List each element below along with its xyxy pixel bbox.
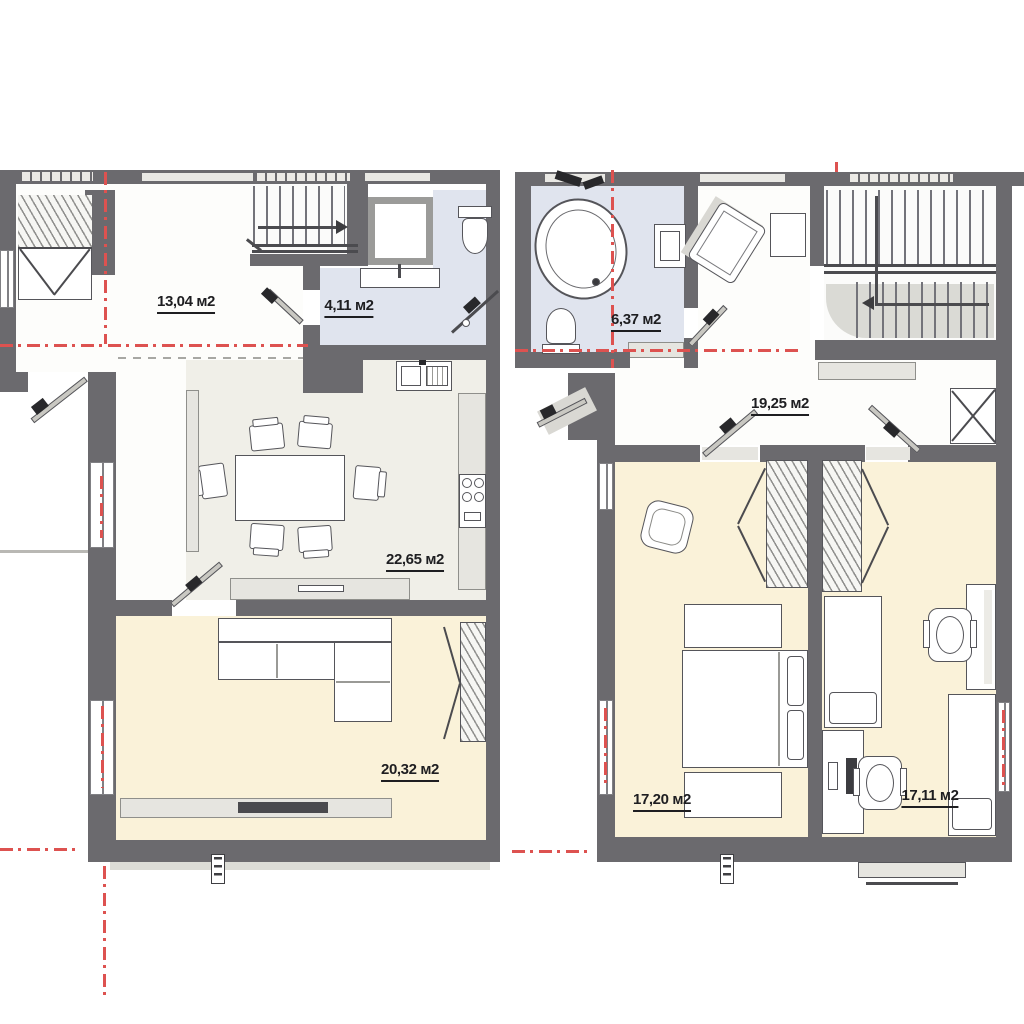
office-chair: [858, 756, 902, 810]
hall-cabinet: [818, 362, 916, 380]
office-chair: [928, 608, 972, 662]
staircase-walkline: [875, 196, 878, 304]
balcony-railing-line: [866, 882, 958, 885]
stairs-direction-arrow: [862, 296, 874, 310]
floor-plan-second: 6,37 м2 19,25 м2 17,20 м2 17,11 м2: [0, 0, 1024, 1024]
axis-line: [515, 349, 800, 352]
balcony-railing: [858, 862, 966, 878]
room-area-label: 17,20 м2: [633, 792, 691, 812]
entrance-threshold-icon: [720, 854, 734, 884]
staircase-rail: [824, 271, 996, 274]
wall: [597, 837, 996, 862]
axis-line: [1002, 710, 1005, 786]
wall: [515, 172, 531, 368]
staircase-steps: [826, 190, 994, 264]
pillow: [787, 710, 804, 760]
staircase-walkline: [875, 303, 989, 306]
wall: [597, 445, 700, 462]
blanket-line: [778, 652, 780, 766]
axis-line: [604, 708, 607, 788]
room-area-label: 6,37 м2: [611, 312, 661, 332]
bedroom-bench: [684, 604, 782, 648]
pillow: [787, 656, 804, 706]
chair-seat: [936, 616, 964, 654]
wall: [810, 186, 824, 266]
staircase-rail: [824, 264, 996, 267]
wall: [908, 445, 996, 462]
room-area-label: 19,25 м2: [751, 396, 809, 416]
wall: [815, 340, 1011, 360]
floor-plans-canvas: 13,04 м2 4,11 м2 22,65 м2 20,32 м2: [0, 0, 1024, 1024]
door-threshold: [866, 447, 910, 460]
pillow: [829, 692, 877, 724]
desk-shelf: [984, 590, 992, 684]
keyboard: [828, 762, 838, 790]
axis-line: [835, 162, 838, 172]
room-area-label: 17,11 м2: [901, 788, 958, 808]
bedroom-bench: [684, 772, 782, 818]
washbasin: [660, 231, 680, 261]
side-table: [770, 213, 806, 257]
wall: [808, 460, 822, 837]
toilet: [546, 308, 576, 344]
wardrobe: [822, 460, 862, 592]
chair-seat: [866, 764, 894, 802]
window: [848, 174, 953, 182]
axis-line: [512, 850, 590, 853]
tub-drain: [592, 278, 600, 286]
pouf-cushion: [646, 506, 687, 547]
window: [599, 463, 613, 510]
window: [700, 174, 785, 182]
axis-line: [611, 170, 614, 368]
wardrobe: [766, 460, 808, 588]
